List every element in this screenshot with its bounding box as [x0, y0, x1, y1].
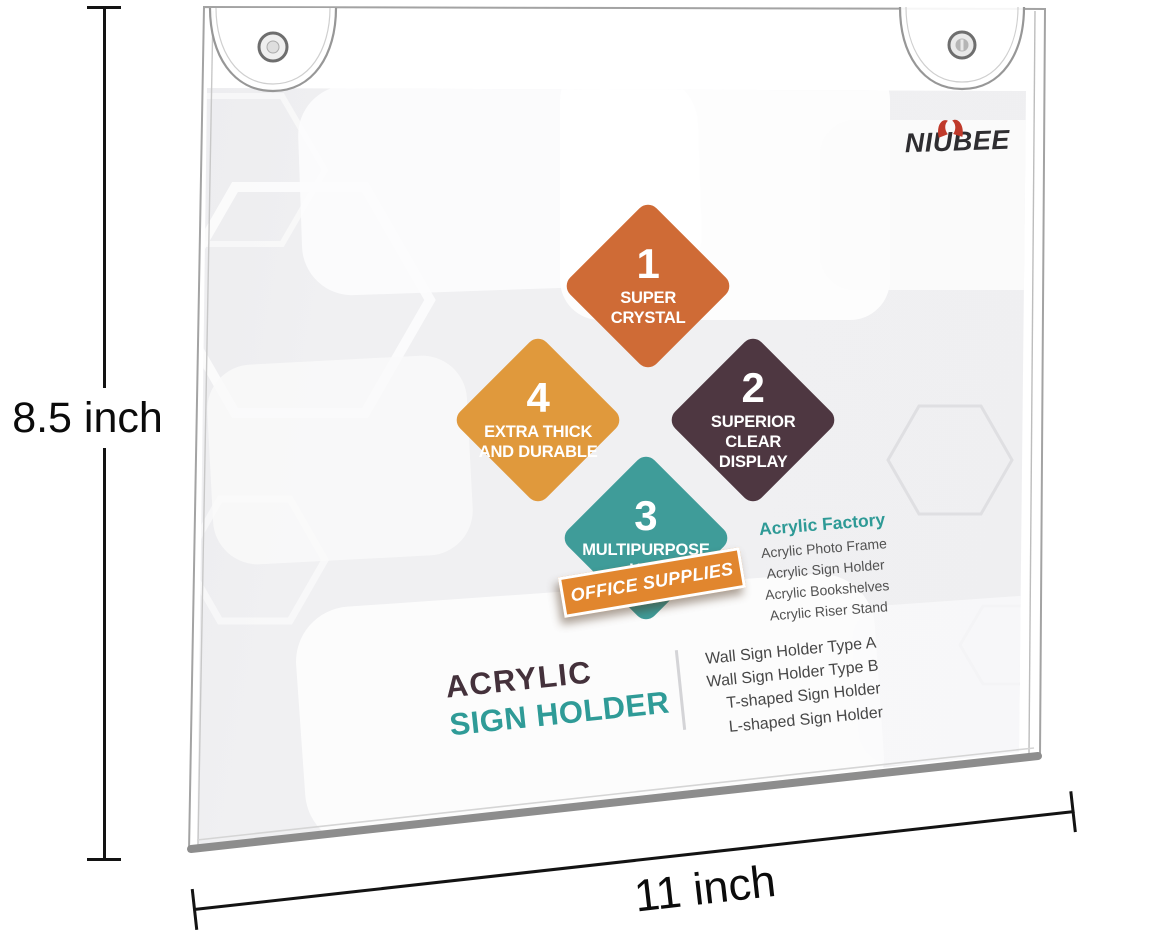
height-dimension-tick-bottom — [87, 858, 121, 861]
hanger-tab-right — [900, 7, 1024, 89]
bull-horns-icon — [935, 116, 966, 139]
feature-label-line: EXTRA THICK — [477, 423, 599, 443]
height-dimension-label: 8.5 inch — [0, 388, 175, 448]
width-dimension-label: 11 inch — [632, 849, 827, 922]
feature-diamond-1-text: 1 SUPER CRYSTAL — [587, 243, 709, 329]
product-photo: NIUBEE 1 SUPER CRYSTAL 2 SUPERIOR CLEAR … — [0, 0, 1153, 932]
height-dimension-tick-top — [87, 6, 121, 9]
insert-paper: NIUBEE 1 SUPER CRYSTAL 2 SUPERIOR CLEAR … — [0, 0, 1153, 932]
hanger-tab-left — [210, 8, 336, 91]
factory-list: Acrylic Factory Acrylic Photo Frame Acry… — [724, 507, 927, 630]
width-dimension-tick-left — [191, 889, 199, 930]
feature-number: 4 — [477, 377, 599, 419]
screw-hole-right — [949, 32, 975, 58]
brand-logo: NIUBEE — [904, 124, 1035, 173]
feature-number: 2 — [692, 367, 814, 409]
feature-label-line: CLEAR DISPLAY — [692, 433, 814, 473]
width-dimension-tick-right — [1069, 791, 1077, 832]
screw-hole-left — [259, 33, 287, 61]
feature-diamond-4-text: 4 EXTRA THICK AND DURABLE — [477, 377, 599, 463]
feature-number: 3 — [582, 495, 709, 537]
feature-label-line: CRYSTAL — [587, 309, 709, 329]
feature-label-line: AND DURABLE — [477, 443, 599, 463]
feature-label-line: SUPER — [587, 289, 709, 309]
feature-number: 1 — [587, 243, 709, 285]
feature-diamond-2-text: 2 SUPERIOR CLEAR DISPLAY — [692, 367, 814, 472]
sign-type-list: Wall Sign Holder Type A Wall Sign Holder… — [694, 631, 884, 741]
feature-label-line: SUPERIOR — [692, 413, 814, 433]
